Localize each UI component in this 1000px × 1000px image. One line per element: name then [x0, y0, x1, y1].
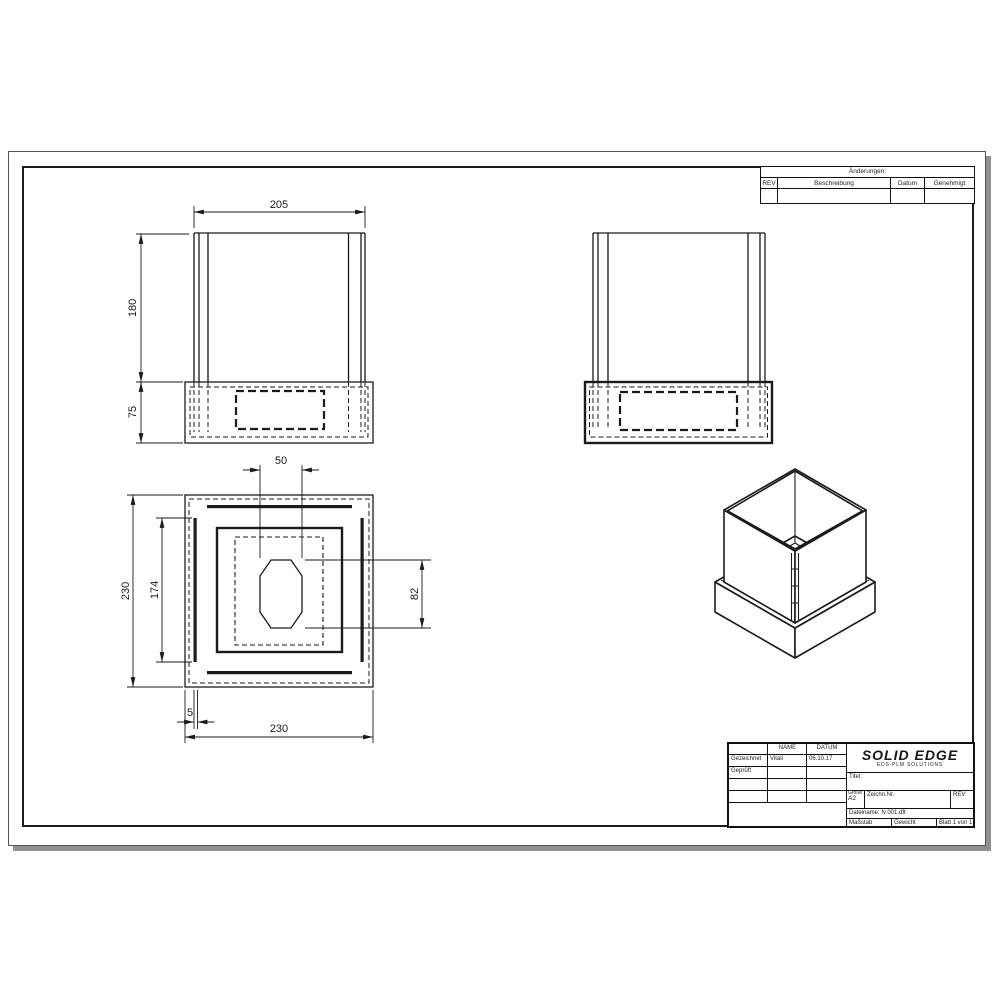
- side-base-outline: [585, 382, 772, 443]
- dim-front-wall-height: 180: [127, 299, 139, 317]
- front-wall-edges: [194, 233, 365, 382]
- isometric-view: [715, 469, 875, 658]
- top-base-outline: [185, 495, 373, 687]
- page-background: Änderungen: REV Beschreibung Datum Geneh…: [0, 0, 1000, 1000]
- dim-top-overall-height: 230: [120, 582, 132, 600]
- dim-front-base-height: 75: [127, 406, 139, 418]
- drawing-views: 205 180 75: [0, 0, 1000, 1000]
- dim-top-slot-width: 5: [187, 707, 193, 719]
- top-view: [185, 495, 373, 687]
- dim-top-overall-width: 230: [270, 723, 288, 735]
- side-wall-edges: [593, 233, 765, 382]
- top-inner-hidden-square: [235, 537, 323, 645]
- dim-top-hole-width: 50: [275, 455, 287, 467]
- top-center-hole: [260, 560, 302, 628]
- front-view: [185, 233, 373, 443]
- front-hidden-pocket: [236, 391, 324, 429]
- dim-top-hole-height: 82: [409, 588, 421, 600]
- top-wall-slots: [194, 505, 364, 674]
- side-hidden-lines: [590, 382, 768, 437]
- dim-front-width: 205: [270, 199, 288, 211]
- dim-top-slot-length: 174: [149, 581, 161, 599]
- side-view: [585, 233, 772, 443]
- side-hidden-pocket: [620, 392, 737, 430]
- front-dimension-lines: [136, 206, 365, 443]
